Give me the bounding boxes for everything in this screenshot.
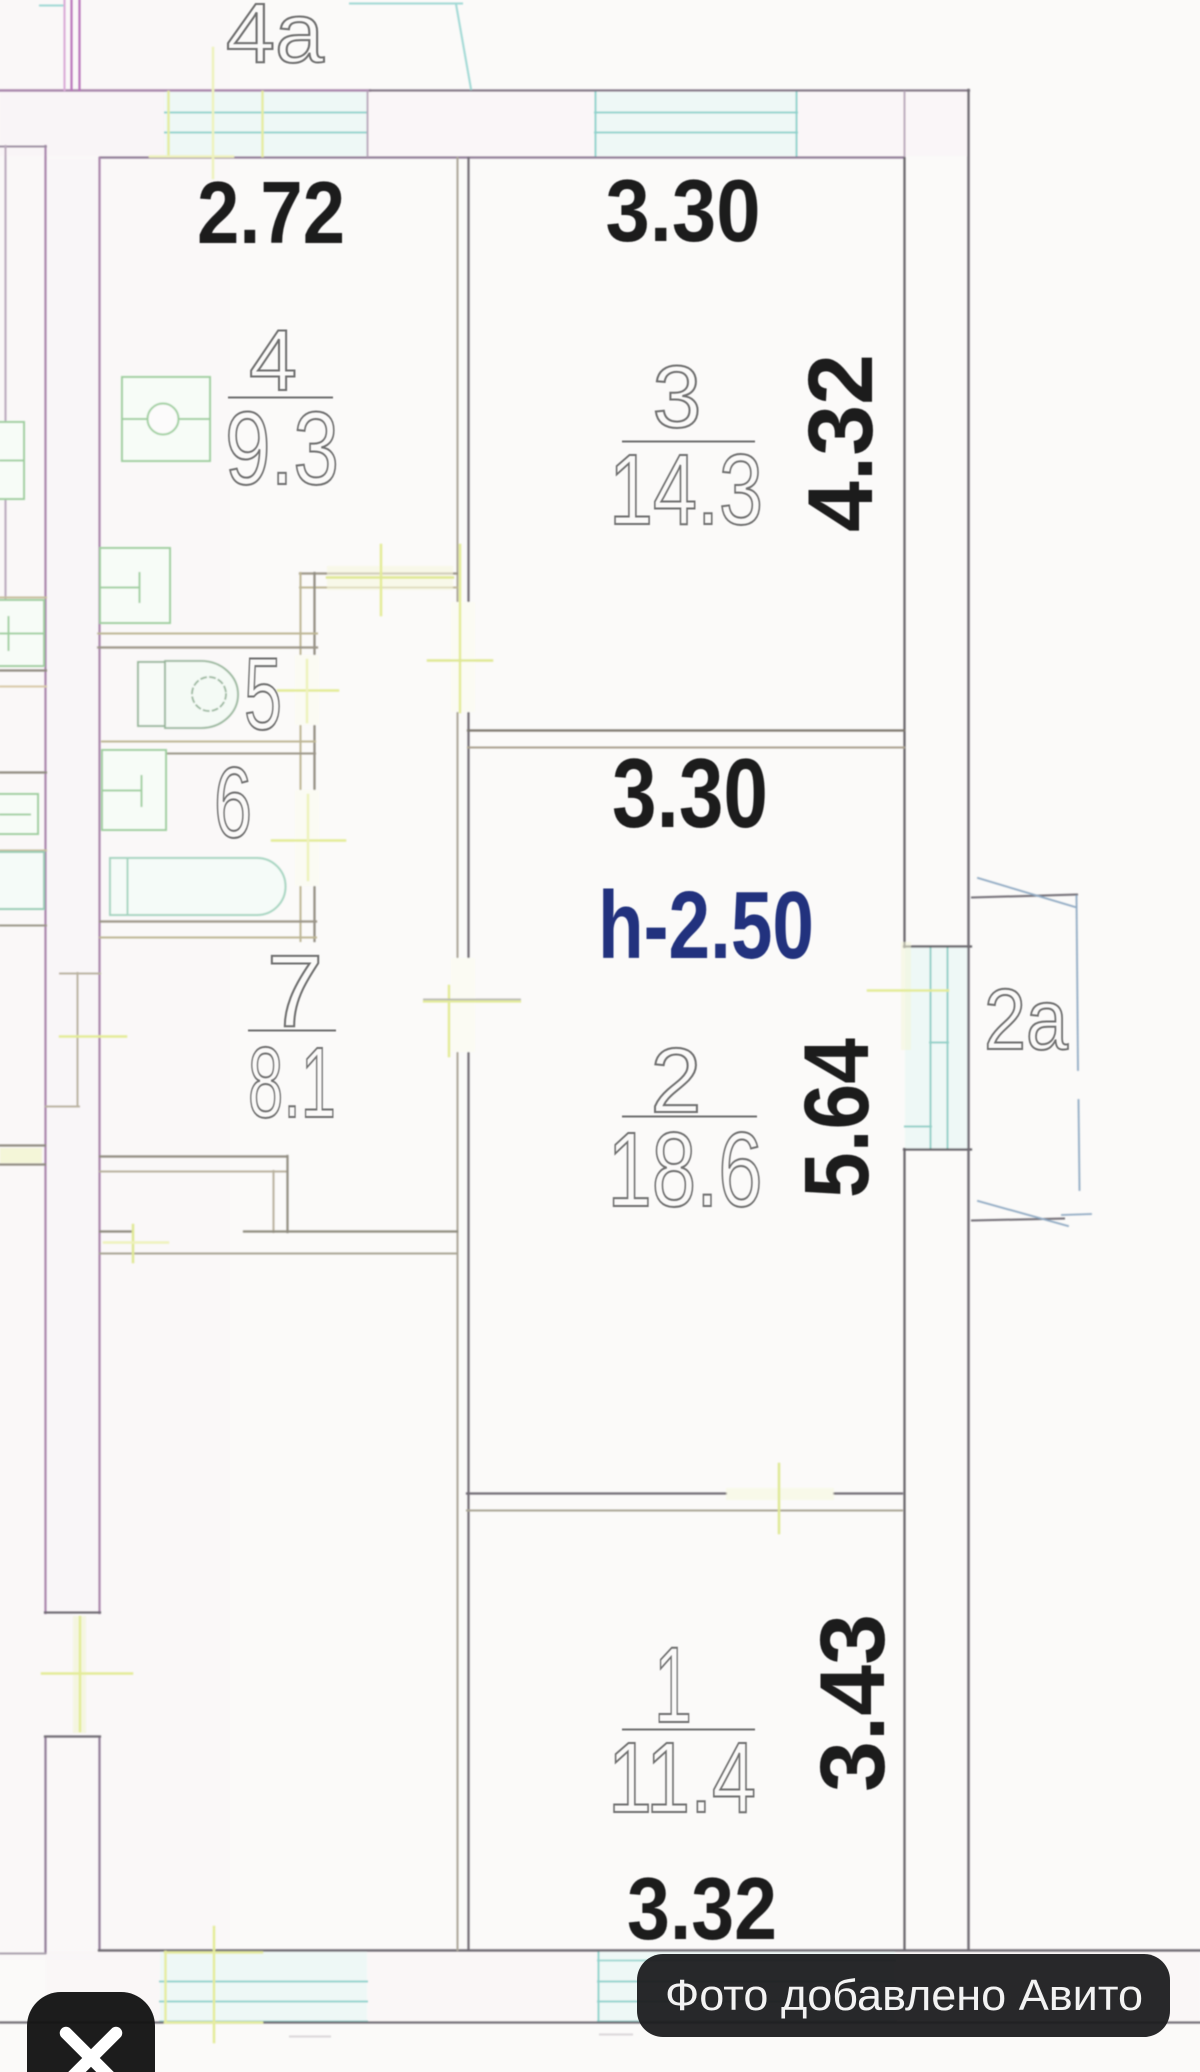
svg-text:3.43: 3.43 (802, 1614, 904, 1792)
svg-text:4a: 4a (226, 0, 324, 80)
svg-text:18.6: 18.6 (608, 1111, 763, 1229)
svg-text:Фото добавлено Авито: Фото добавлено Авито (665, 1971, 1143, 2020)
svg-text:3: 3 (653, 347, 702, 446)
svg-text:3.32: 3.32 (627, 1859, 777, 1958)
svg-text:14.3: 14.3 (609, 434, 763, 546)
svg-text:6: 6 (214, 747, 252, 859)
svg-text:4.32: 4.32 (790, 354, 892, 532)
svg-text:2.72: 2.72 (197, 163, 345, 262)
svg-text:5.64: 5.64 (786, 1038, 888, 1198)
svg-text:3.30: 3.30 (612, 738, 768, 848)
svg-text:8.1: 8.1 (248, 1027, 336, 1139)
svg-text:5: 5 (244, 637, 282, 751)
svg-text:3.30: 3.30 (606, 161, 761, 260)
svg-text:9.3: 9.3 (225, 391, 339, 507)
svg-text:11.4: 11.4 (608, 1722, 756, 1834)
svg-text:h-2.50: h-2.50 (598, 872, 814, 979)
svg-text:2a: 2a (984, 972, 1068, 1068)
